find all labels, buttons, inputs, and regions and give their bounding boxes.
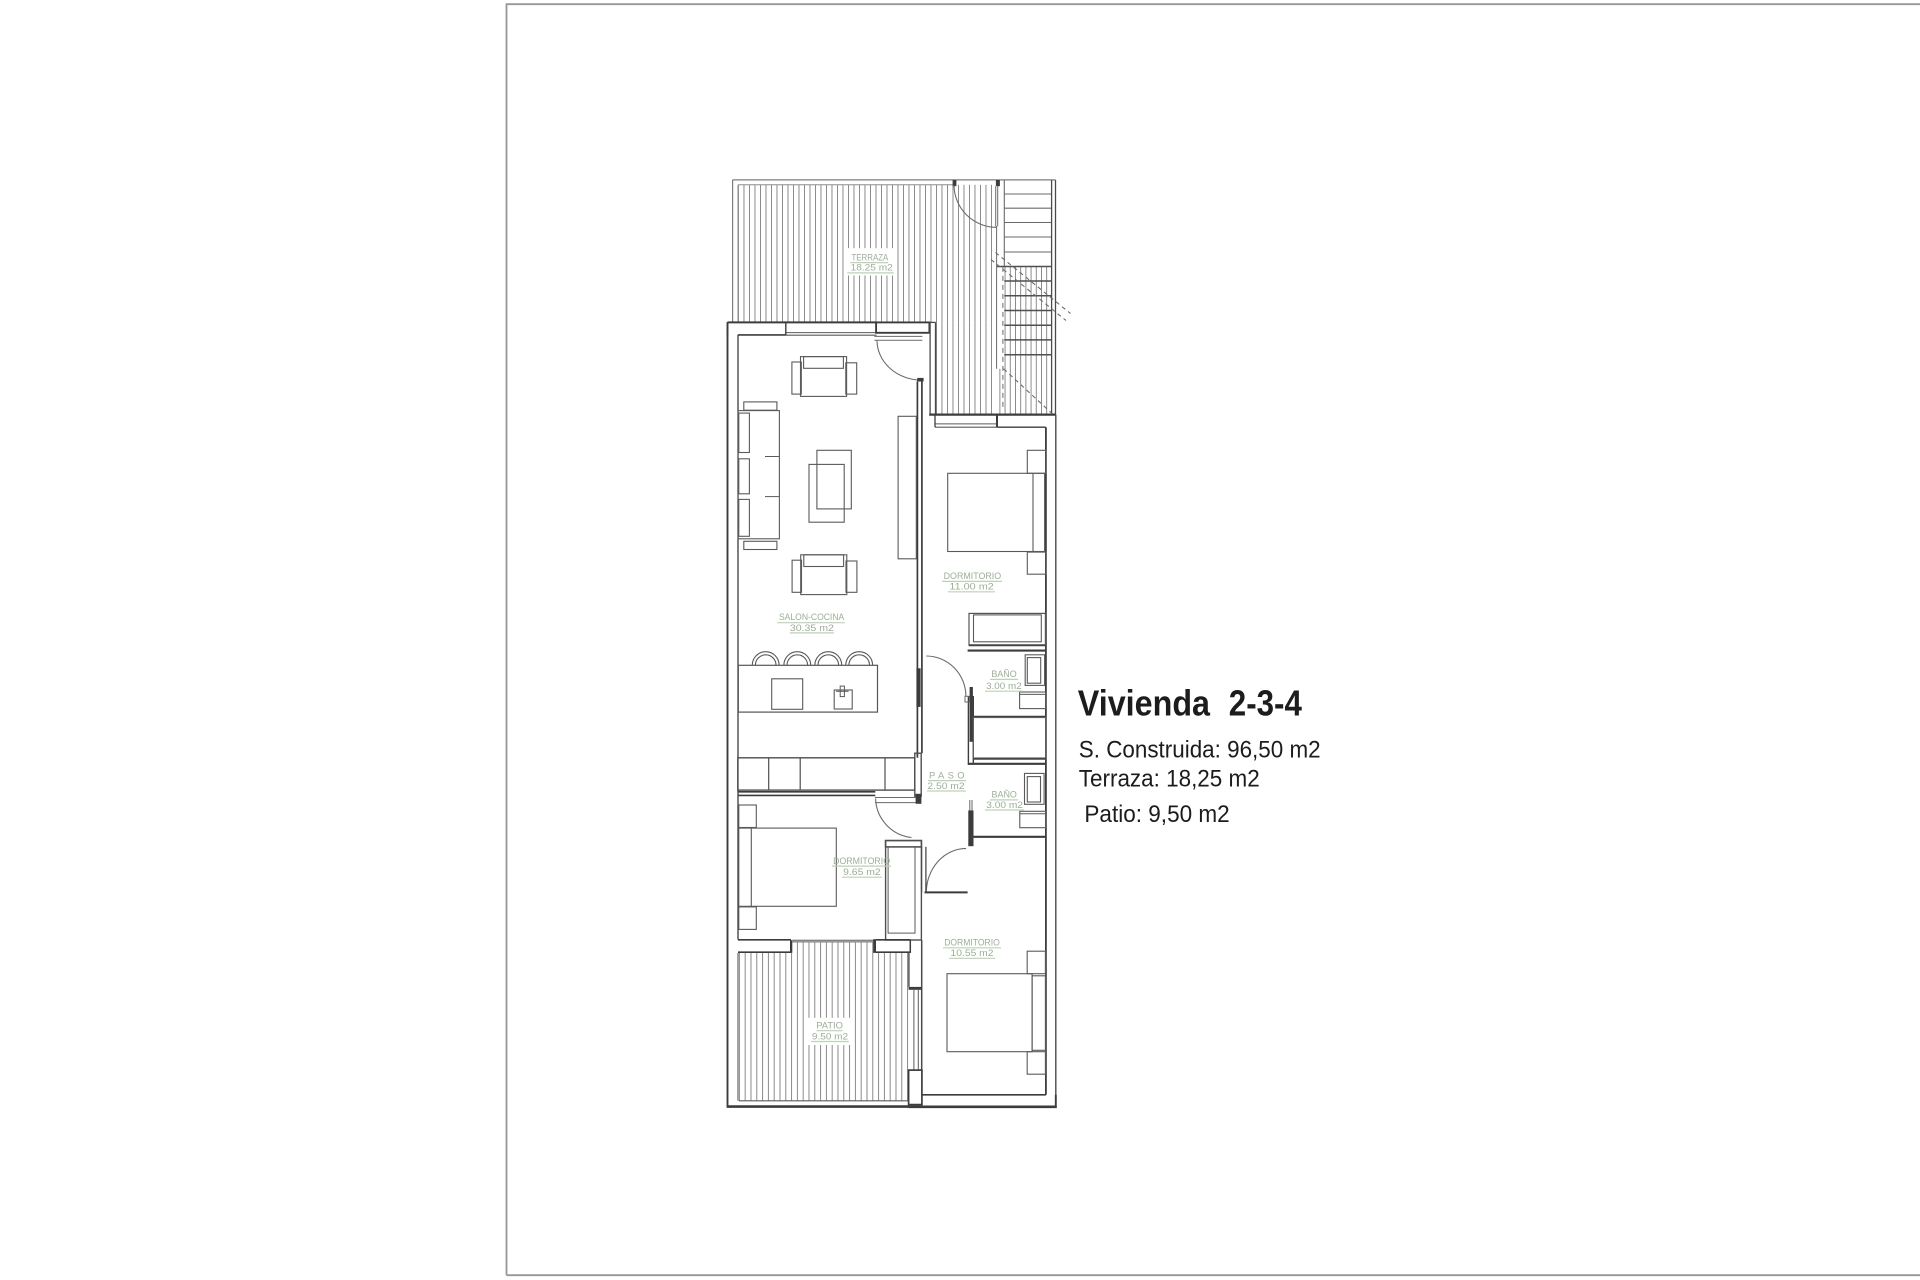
svg-text:3.00 m2: 3.00 m2 bbox=[986, 799, 1023, 810]
svg-text:3.00 m2: 3.00 m2 bbox=[986, 680, 1022, 691]
svg-text:11.00 m2: 11.00 m2 bbox=[949, 581, 993, 592]
svg-text:2-3-4: 2-3-4 bbox=[1229, 682, 1302, 723]
svg-text:DORMITORIO: DORMITORIO bbox=[944, 570, 1002, 581]
svg-text:30.35 m2: 30.35 m2 bbox=[790, 622, 834, 633]
svg-text:DORMITORIO: DORMITORIO bbox=[944, 937, 1000, 948]
svg-text:PATIO: PATIO bbox=[816, 1020, 843, 1031]
svg-text:Vivienda: Vivienda bbox=[1078, 682, 1211, 723]
svg-text:DORMITORIO: DORMITORIO bbox=[833, 855, 890, 866]
svg-text:2.50 m2: 2.50 m2 bbox=[927, 780, 964, 791]
svg-text:BAÑO: BAÑO bbox=[991, 668, 1016, 679]
svg-text:Patio: 9,50 m2: Patio: 9,50 m2 bbox=[1084, 801, 1229, 828]
svg-text:Terraza: 18,25 m2: Terraza: 18,25 m2 bbox=[1079, 766, 1260, 793]
svg-text:SALON-COCINA: SALON-COCINA bbox=[779, 611, 845, 622]
svg-text:9.65 m2: 9.65 m2 bbox=[843, 866, 881, 877]
svg-text:PASO: PASO bbox=[929, 769, 965, 780]
svg-text:S. Construida: 96,50 m2: S. Construida: 96,50 m2 bbox=[1079, 737, 1321, 764]
svg-text:9.50 m2: 9.50 m2 bbox=[812, 1031, 848, 1042]
svg-text:10.55 m2: 10.55 m2 bbox=[951, 947, 994, 958]
svg-text:18.25 m2: 18.25 m2 bbox=[851, 262, 893, 273]
